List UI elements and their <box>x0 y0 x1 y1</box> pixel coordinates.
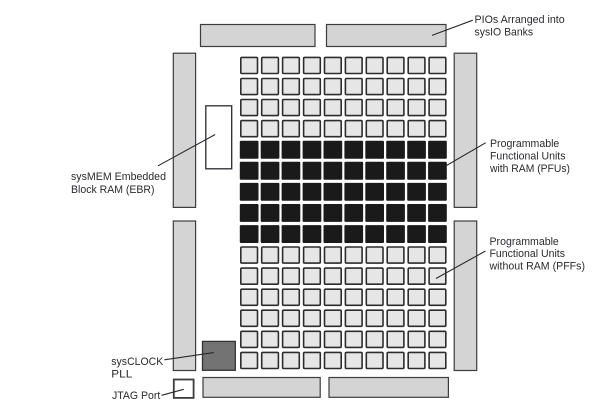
svg-text:with RAM (PFUs): with RAM (PFUs) <box>489 163 570 175</box>
svg-text:sysCLOCK: sysCLOCK <box>111 356 164 368</box>
svg-text:Programmable: Programmable <box>490 138 559 150</box>
svg-text:Functional Units: Functional Units <box>490 151 566 163</box>
svg-text:sysIO Banks: sysIO Banks <box>475 27 534 39</box>
svg-text:Programmable: Programmable <box>490 236 559 248</box>
svg-text:without RAM (PFFs): without RAM (PFFs) <box>489 261 585 273</box>
svg-text:JTAG Port: JTAG Port <box>112 390 160 402</box>
svg-text:PLL: PLL <box>111 369 132 381</box>
svg-text:PIOs Arranged into: PIOs Arranged into <box>475 14 565 26</box>
svg-text:sysMEM Embedded: sysMEM Embedded <box>71 171 166 183</box>
svg-text:Block RAM (EBR): Block RAM (EBR) <box>71 184 155 196</box>
svg-text:Functional Units: Functional Units <box>490 248 566 260</box>
